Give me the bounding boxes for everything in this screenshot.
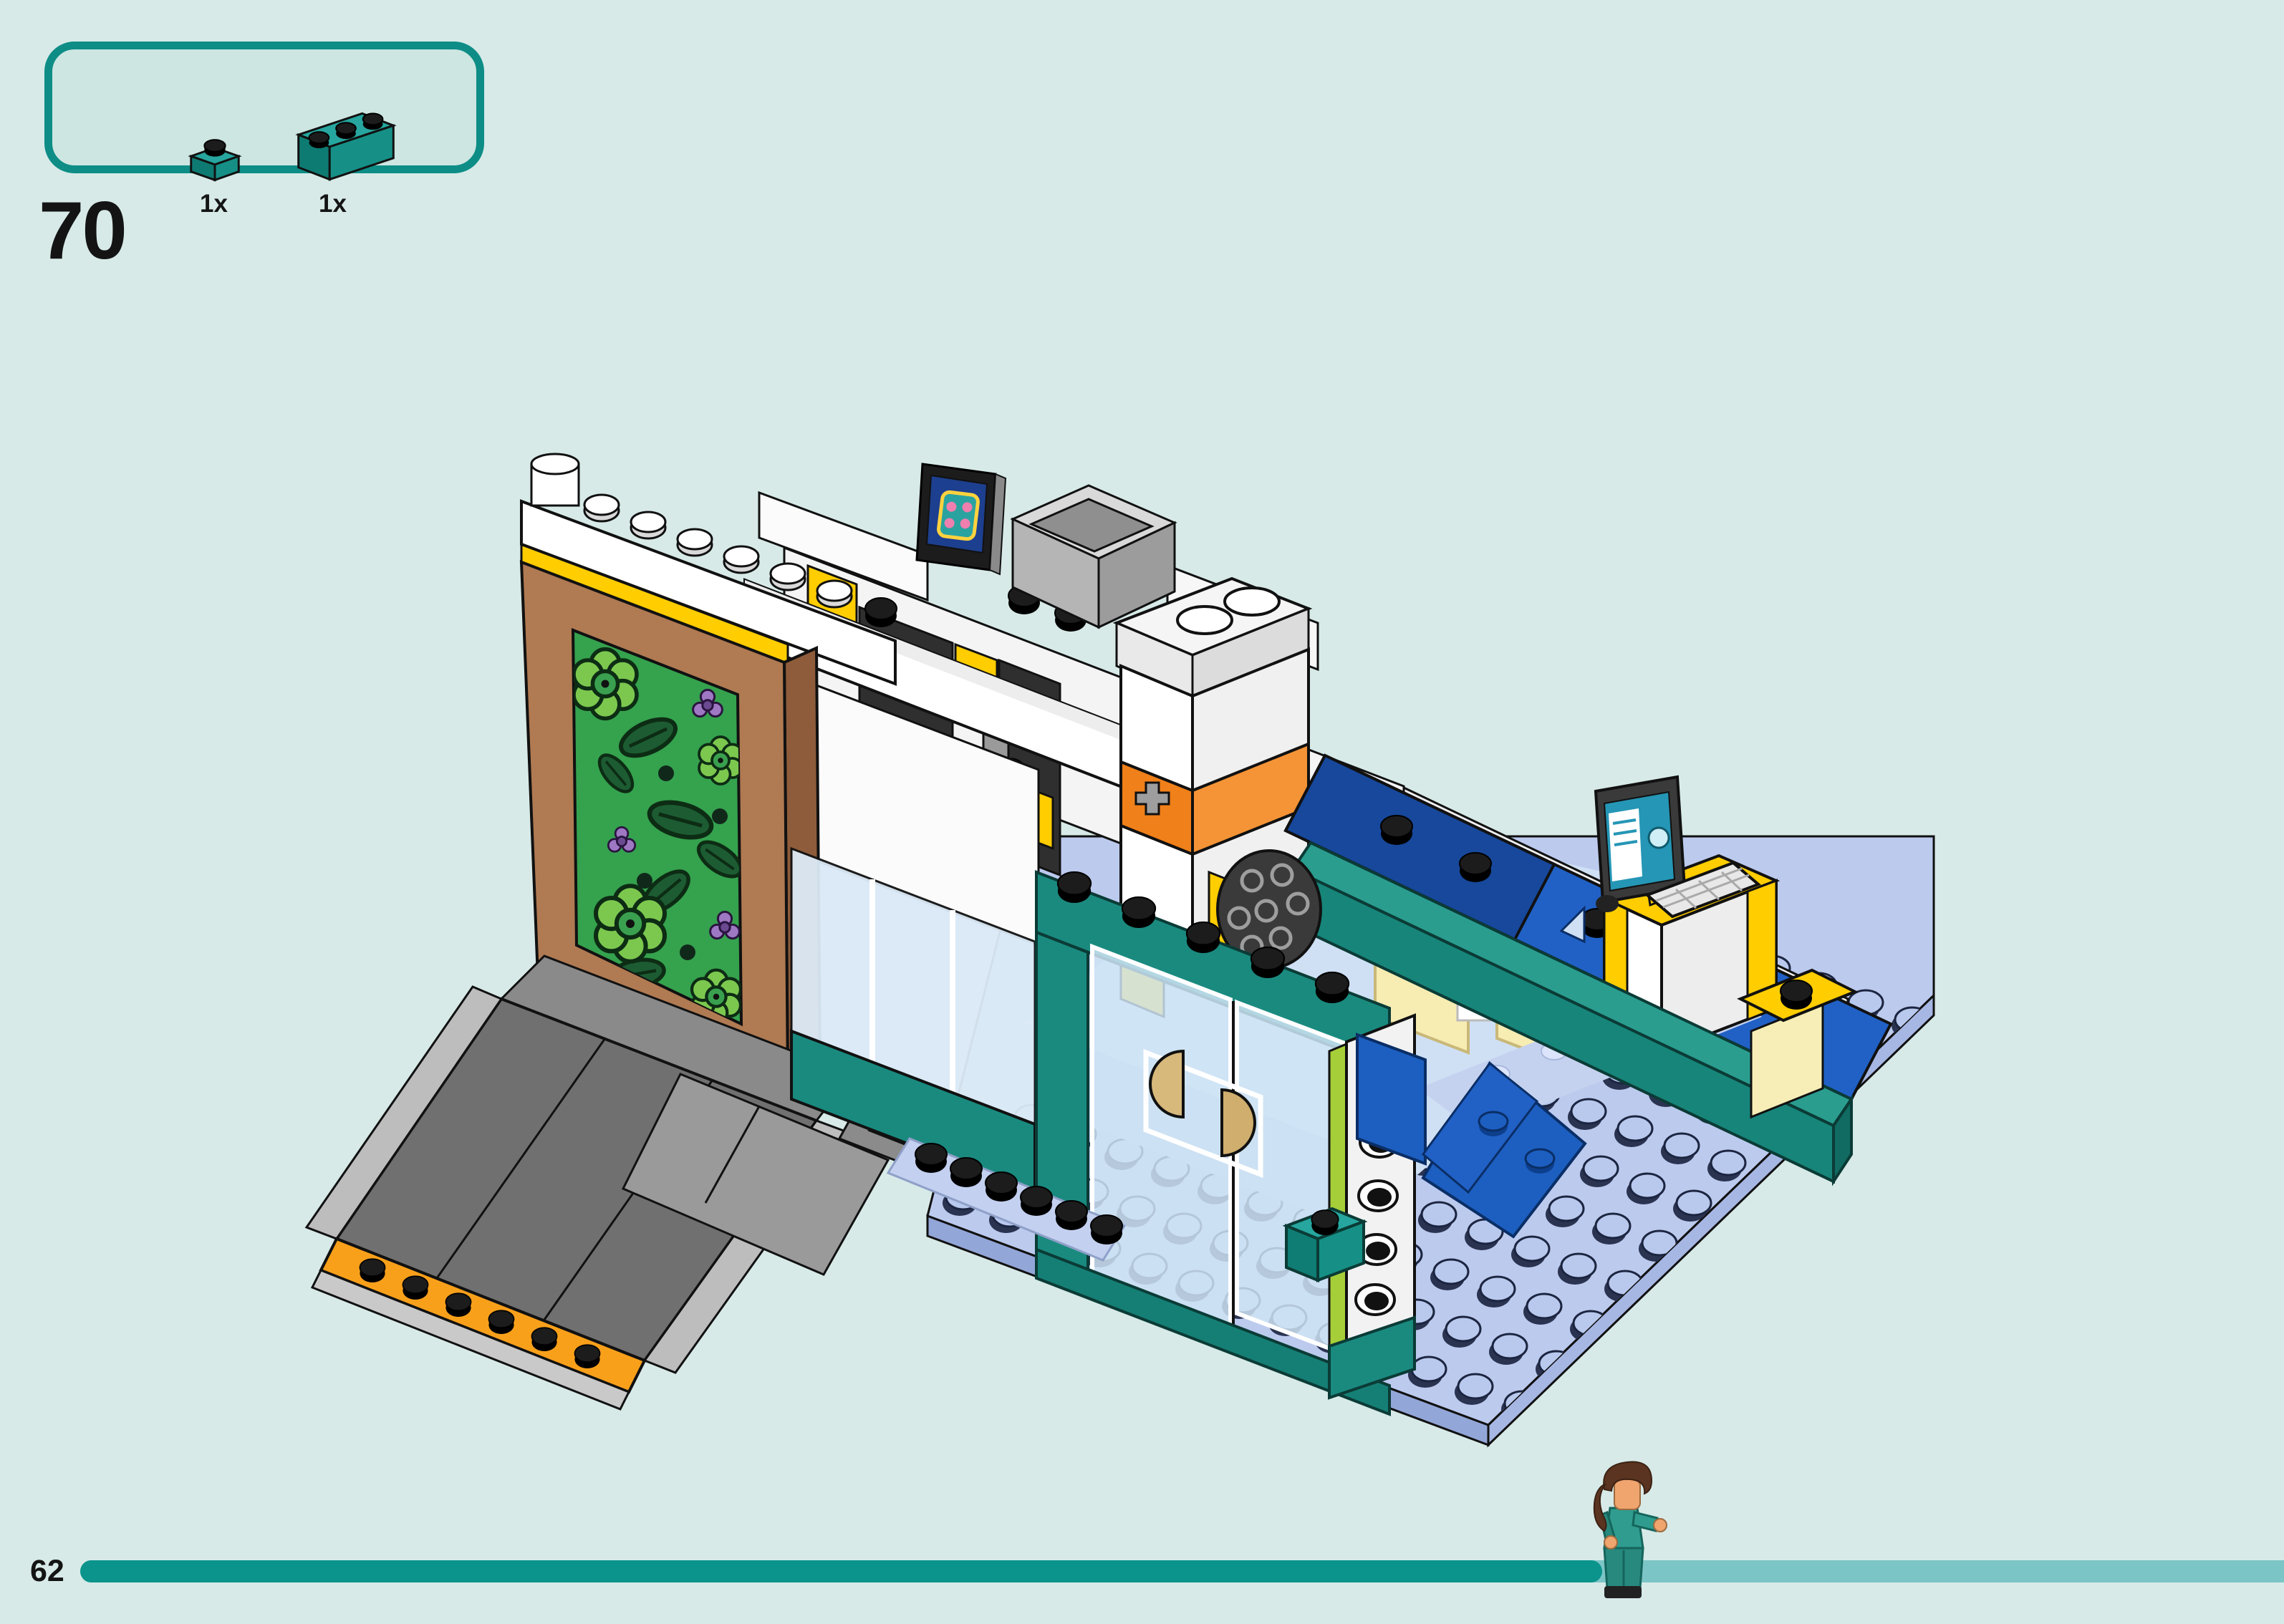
model-illustration (0, 0, 2284, 1624)
sliding-glass-door-left (1092, 947, 1230, 1333)
lime-stripe (1329, 1044, 1346, 1357)
instruction-page: { "page": { "step_number": "70", "page_n… (0, 0, 2284, 1624)
minifigure (1594, 1462, 1667, 1598)
rooftop-sign (917, 464, 1006, 574)
